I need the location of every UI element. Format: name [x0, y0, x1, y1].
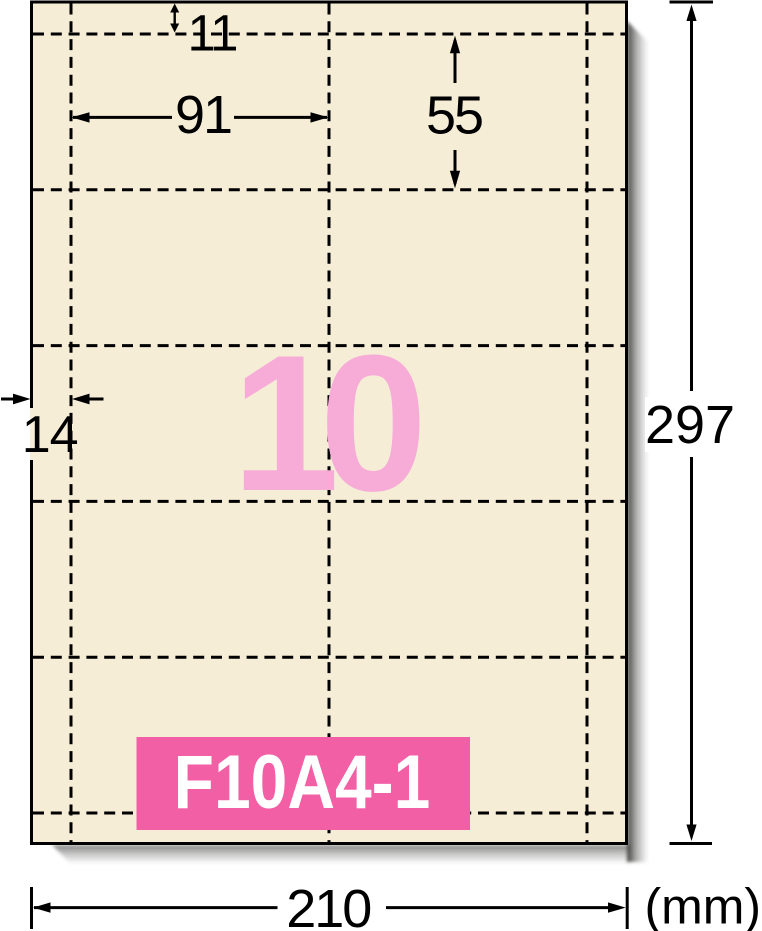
svg-text:10: 10 — [232, 315, 420, 532]
svg-text:14: 14 — [22, 406, 78, 464]
svg-text:11: 11 — [188, 4, 237, 61]
svg-text:55: 55 — [426, 86, 482, 146]
svg-text:(mm): (mm) — [644, 879, 761, 931]
svg-text:F10A4-1: F10A4-1 — [174, 741, 431, 825]
svg-text:297: 297 — [645, 395, 735, 455]
svg-text:210: 210 — [286, 879, 370, 931]
svg-text:91: 91 — [175, 85, 231, 145]
